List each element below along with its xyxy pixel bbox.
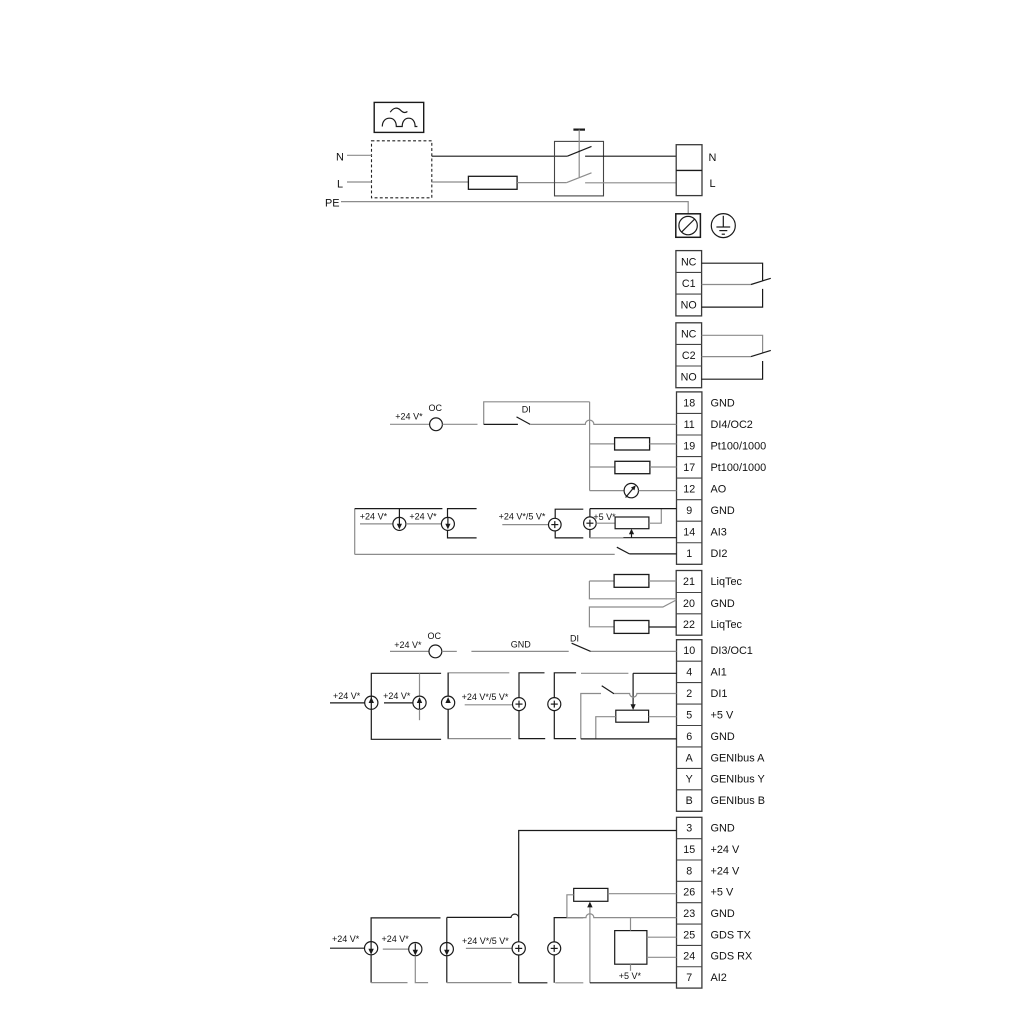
svg-text:+24 V*: +24 V* (383, 691, 411, 701)
svg-text:3: 3 (686, 823, 692, 835)
svg-text:Pt100/1000: Pt100/1000 (711, 462, 767, 474)
svg-text:17: 17 (683, 462, 695, 474)
svg-text:GDS RX: GDS RX (711, 951, 753, 963)
svg-text:4: 4 (686, 667, 692, 679)
svg-text:OC: OC (428, 631, 442, 641)
svg-text:6: 6 (686, 731, 692, 743)
svg-text:+24 V*/5 V*: +24 V*/5 V* (462, 692, 509, 702)
svg-text:GND: GND (711, 598, 735, 610)
svg-text:+24 V*: +24 V* (409, 511, 437, 521)
svg-text:OC: OC (429, 403, 443, 413)
svg-text:23: 23 (683, 908, 695, 920)
svg-text:GND: GND (711, 908, 735, 920)
svg-text:AI3: AI3 (711, 527, 727, 539)
svg-text:AO: AO (711, 484, 727, 496)
svg-text:DI2: DI2 (711, 548, 728, 560)
svg-text:19: 19 (683, 440, 695, 452)
svg-text:DI: DI (570, 633, 579, 643)
svg-text:GENIbus Y: GENIbus Y (711, 774, 766, 786)
svg-text:+24 V*: +24 V* (395, 412, 423, 422)
svg-text:26: 26 (683, 887, 695, 899)
svg-text:+24 V*: +24 V* (333, 691, 361, 701)
svg-text:15: 15 (683, 844, 695, 856)
svg-text:24: 24 (683, 951, 695, 963)
svg-text:N: N (336, 152, 344, 164)
svg-text:N: N (709, 152, 717, 164)
svg-text:GND: GND (511, 639, 532, 649)
svg-text:2: 2 (686, 688, 692, 700)
svg-text:NO: NO (681, 372, 697, 384)
svg-text:+24 V*/5 V*: +24 V*/5 V* (462, 936, 509, 946)
svg-text:10: 10 (683, 645, 695, 657)
svg-text:25: 25 (683, 929, 695, 941)
svg-text:+24 V: +24 V (711, 865, 740, 877)
svg-text:21: 21 (683, 576, 695, 588)
svg-text:A: A (686, 752, 694, 764)
svg-text:DI4/OC2: DI4/OC2 (711, 419, 753, 431)
svg-text:GND: GND (711, 823, 735, 835)
svg-text:12: 12 (683, 484, 695, 496)
svg-text:+24 V*: +24 V* (394, 640, 422, 650)
svg-text:C1: C1 (682, 278, 696, 290)
svg-text:+5 V*: +5 V* (593, 512, 616, 522)
svg-text:+24 V*: +24 V* (360, 511, 388, 521)
svg-text:5: 5 (686, 709, 692, 721)
svg-text:+24 V*/5 V*: +24 V*/5 V* (499, 512, 546, 522)
svg-text:8: 8 (686, 865, 692, 877)
svg-text:18: 18 (683, 397, 695, 409)
svg-text:+24 V*: +24 V* (332, 934, 360, 944)
svg-text:B: B (686, 795, 693, 807)
svg-text:+24 V: +24 V (711, 844, 740, 856)
svg-text:AI2: AI2 (711, 972, 727, 984)
svg-text:+24 V*: +24 V* (382, 934, 410, 944)
svg-text:Y: Y (686, 774, 693, 786)
svg-text:7: 7 (686, 972, 692, 984)
svg-text:GND: GND (711, 397, 735, 409)
svg-text:+5 V: +5 V (711, 709, 734, 721)
svg-text:22: 22 (683, 619, 695, 631)
svg-text:9: 9 (686, 505, 692, 517)
svg-text:Pt100/1000: Pt100/1000 (711, 440, 767, 452)
svg-text:GENIbus A: GENIbus A (711, 752, 766, 764)
svg-text:NC: NC (681, 257, 697, 269)
svg-text:PE: PE (325, 198, 340, 210)
svg-text:DI: DI (522, 404, 531, 414)
svg-text:GND: GND (711, 505, 735, 517)
svg-text:GDS TX: GDS TX (711, 929, 752, 941)
svg-text:1: 1 (686, 548, 692, 560)
svg-text:GENIbus B: GENIbus B (711, 795, 765, 807)
svg-text:NC: NC (681, 328, 697, 340)
svg-text:L: L (337, 179, 343, 191)
svg-text:LiqTec: LiqTec (711, 619, 743, 631)
svg-text:14: 14 (683, 527, 695, 539)
svg-text:DI3/OC1: DI3/OC1 (711, 645, 753, 657)
svg-text:DI1: DI1 (711, 688, 728, 700)
svg-text:LiqTec: LiqTec (711, 576, 743, 588)
svg-text:GND: GND (711, 731, 735, 743)
svg-text:11: 11 (684, 419, 695, 431)
svg-text:20: 20 (683, 598, 695, 610)
svg-text:NO: NO (681, 300, 697, 312)
svg-text:+5 V: +5 V (711, 887, 734, 899)
svg-text:C2: C2 (682, 350, 696, 362)
svg-text:+5 V*: +5 V* (619, 971, 642, 981)
svg-text:AI1: AI1 (711, 667, 727, 679)
svg-text:L: L (710, 178, 716, 190)
